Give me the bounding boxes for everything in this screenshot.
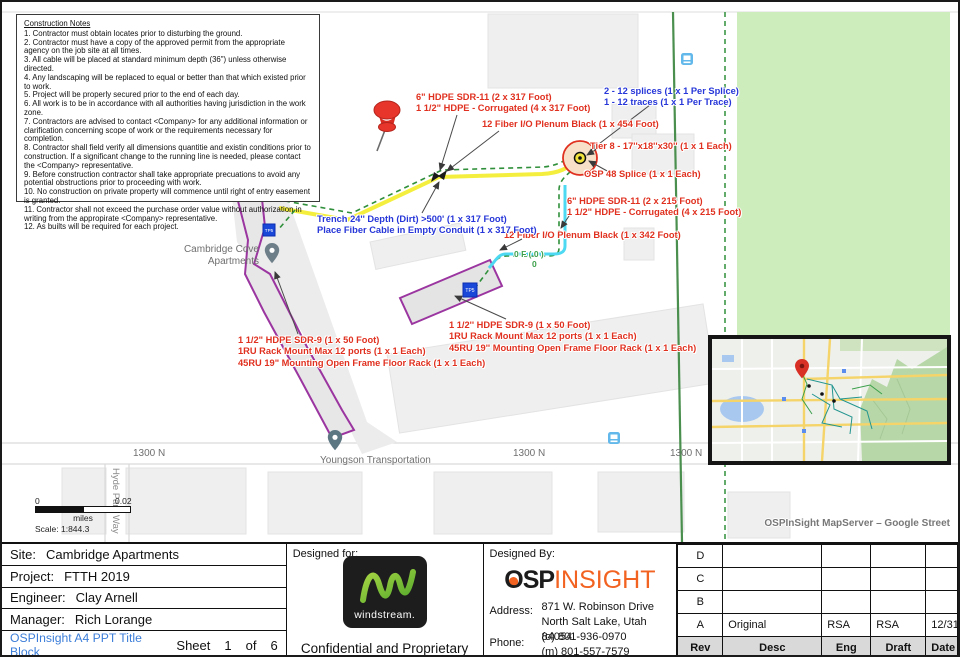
ospinsight-logo: OSPINSIGHT [484,566,677,595]
construction-note: 7. Contractors are advised to contact <C… [24,118,312,144]
manager-label: Manager: [10,612,65,627]
site-row: Site: Cambridge Apartments [2,544,286,566]
construction-note: 9. Before construction contractor shall … [24,171,312,189]
revision-table: D C B AOriginal RSARSA 12/31/2019 [677,544,958,657]
scale-max: 0.02 [115,496,132,506]
windstream-logo: windstream. [343,556,427,628]
label-cambridge-cove: Cambridge CoveApartments [147,244,259,267]
apartment-building-outline-south [400,260,502,324]
construction-notes-box: Construction Notes 1. Contractor must ob… [16,14,320,202]
inset-map-caption: OSPInSight MapServer – Google Street [642,518,950,529]
youngson-pin-icon [328,430,342,450]
annotation-splices-traces: 2 - 12 splices (1 x 1 Per Splice)1 - 12 … [604,86,739,109]
annotation-rack-mid: 1 1/2'' HDPE SDR-9 (1 x 50 Foot)1RU Rack… [449,320,696,354]
windstream-squiggle-icon [355,562,439,608]
construction-note: 6. All work is to be in accordance with … [24,100,312,118]
label-youngson-transportation: Youngson Transportation [320,455,431,467]
revision-row-a: AOriginal RSARSA 12/31/2019 [678,614,958,637]
scale-bar: 0 0.02 miles Scale: 1:844.3 [35,496,131,534]
pushpin-icon [374,101,400,151]
annotation-fiber-454: 12 Fiber I/O Plenum Black (1 x 454 Foot) [482,119,659,130]
annotation-fiber-zero: 0 [532,259,537,269]
designed-by-section: Designed By: OSPINSIGHT Address: 871 W. … [484,544,678,657]
annotation-osp48-splice: OSP 48 Splice (1 x 1 Each) [584,169,701,180]
plan-sheet: TP5 TP5 [0,0,960,657]
site-value: Cambridge Apartments [46,547,179,562]
scale-ratio: Scale: 1:844.3 [35,524,131,534]
construction-note: 10. No construction on private property … [24,188,312,206]
revision-row-c: C [678,568,958,591]
annotation-hdpe-215: 6" HDPE SDR-11 (2 x 215 Foot)1 1/2" HDPE… [567,196,741,219]
sheet-number: 1 [224,638,231,653]
osp-logo-sp: SP [523,566,554,594]
revision-row-d: D [678,545,958,568]
construction-note: 8. Contractor shall field verify all dim… [24,144,312,170]
construction-note: 11. Contractor shall not exceed the purc… [24,206,312,224]
annotation-fiber-count: 0 F ( 0 ) [514,249,544,259]
scale-units: miles [35,513,131,523]
terminal-point-tp2: TP5 [463,283,477,297]
designed-by-label: Designed By: [490,548,555,560]
project-value: FTTH 2019 [64,569,130,584]
osp-logo-o: O [504,566,522,595]
label-1300n-east: 1300 N [670,448,702,460]
engineer-row: Engineer: Clay Arnell [2,588,286,610]
engineer-label: Engineer: [10,590,66,605]
transit-station-icon-north [681,53,693,65]
template-sheet-row: OSPInsight A4 PPT Title Block Sheet 1 of… [2,631,286,657]
project-row: Project: FTTH 2019 [2,566,286,588]
template-name: OSPInsight A4 PPT Title Block [10,631,162,657]
scale-zero: 0 [35,496,40,506]
manager-value: Rich Lorange [75,612,152,627]
site-label: Site: [10,547,36,562]
sheet-numbering: Sheet 1 of 6 [176,638,277,653]
sheet-total: 6 [270,638,277,653]
label-1300n-mid: 1300 N [513,448,545,460]
title-block: Site: Cambridge Apartments Project: FTTH… [2,542,958,657]
park-area [737,12,950,350]
construction-note: 12. As builts will be required for each … [24,223,312,232]
construction-notes-title: Construction Notes [24,20,312,29]
revision-row-b: B [678,591,958,614]
engineer-value: Clay Arnell [76,590,138,605]
annotation-tier8-handhole: Tier 8 - 17''x18''x30'' (1 x 1 Each) [590,141,732,152]
title-block-left: Site: Cambridge Apartments Project: FTTH… [2,544,287,657]
manager-row: Manager: Rich Lorange [2,609,286,631]
phone-label: Phone: [490,637,525,649]
trench-yellow-line [279,161,575,220]
of-label: of [246,638,257,653]
windstream-wordmark: windstream. [343,609,427,621]
inset-map-canvas [712,339,947,461]
inset-overview-map [708,335,951,465]
scale-bar-graphic [35,506,131,513]
construction-note: 3. All cable will be placed at standard … [24,56,312,74]
project-label: Project: [10,569,54,584]
revision-table-header: RevDesc EngDraft Date [678,637,958,657]
svg-text:TP5: TP5 [465,288,474,294]
phone-value: (o) 801-936-0970(m) 801-557-7579 [542,630,630,657]
designed-for-section: Designed for: windstream. Confidential a… [287,544,484,657]
construction-note: 4. Any landscaping will be replaced to e… [24,74,312,92]
address-label: Address: [490,605,533,617]
confidential-notice: Confidential and Proprietary [287,641,483,656]
transit-station-icon-south [608,432,620,444]
sheet-label: Sheet [176,638,210,653]
label-1300n-west: 1300 N [133,448,165,460]
annotation-trench: Trench 24'' Depth (Dirt) >500' (1 x 317 … [317,214,537,237]
osp-logo-insight: INSIGHT [554,566,655,594]
construction-note: 2. Contractor must have a copy of the ap… [24,39,312,57]
annotation-hdpe-317: 6" HDPE SDR-11 (2 x 317 Foot)1 1/2" HDPE… [416,92,590,115]
